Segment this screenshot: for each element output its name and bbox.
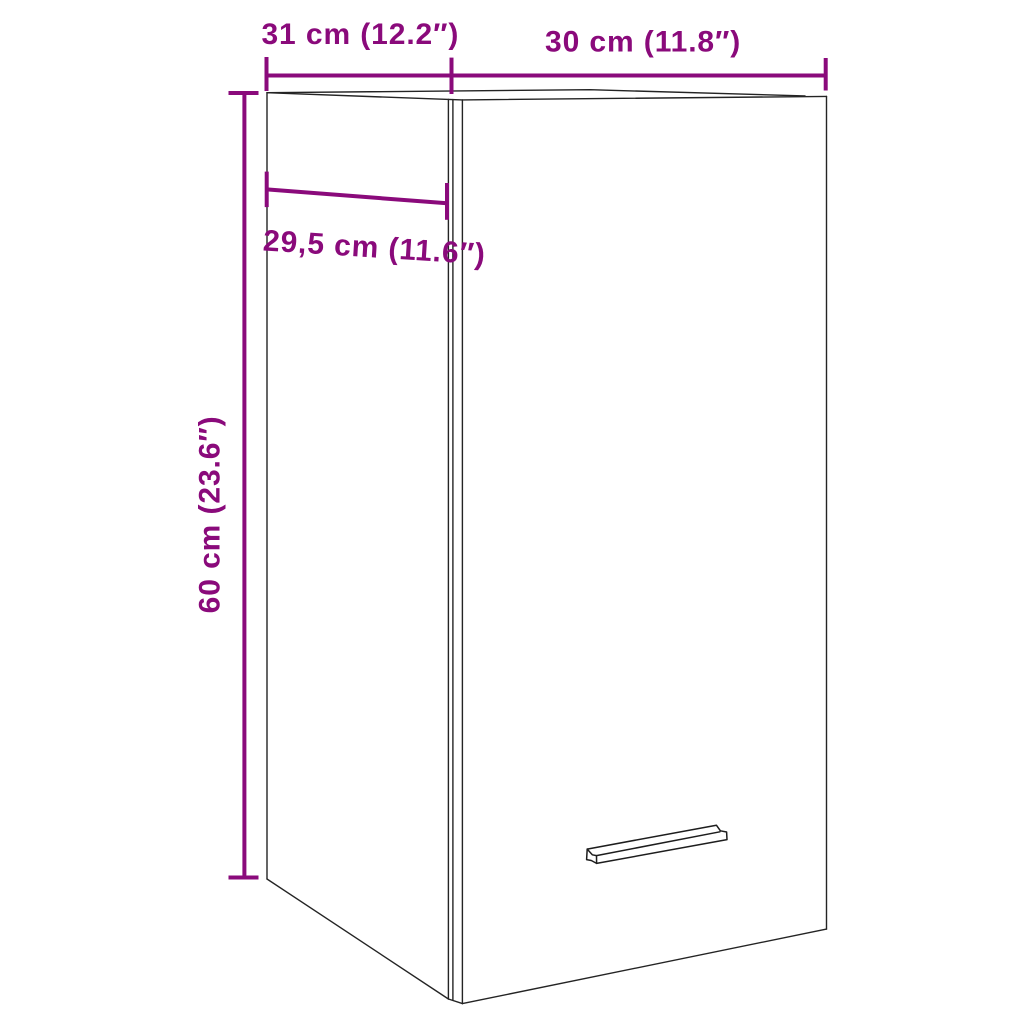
- svg-text:31 cm (12.2″): 31 cm (12.2″): [261, 18, 459, 51]
- svg-text:30 cm (11.8″): 30 cm (11.8″): [545, 25, 741, 58]
- svg-text:60 cm (23.6″): 60 cm (23.6″): [194, 415, 227, 613]
